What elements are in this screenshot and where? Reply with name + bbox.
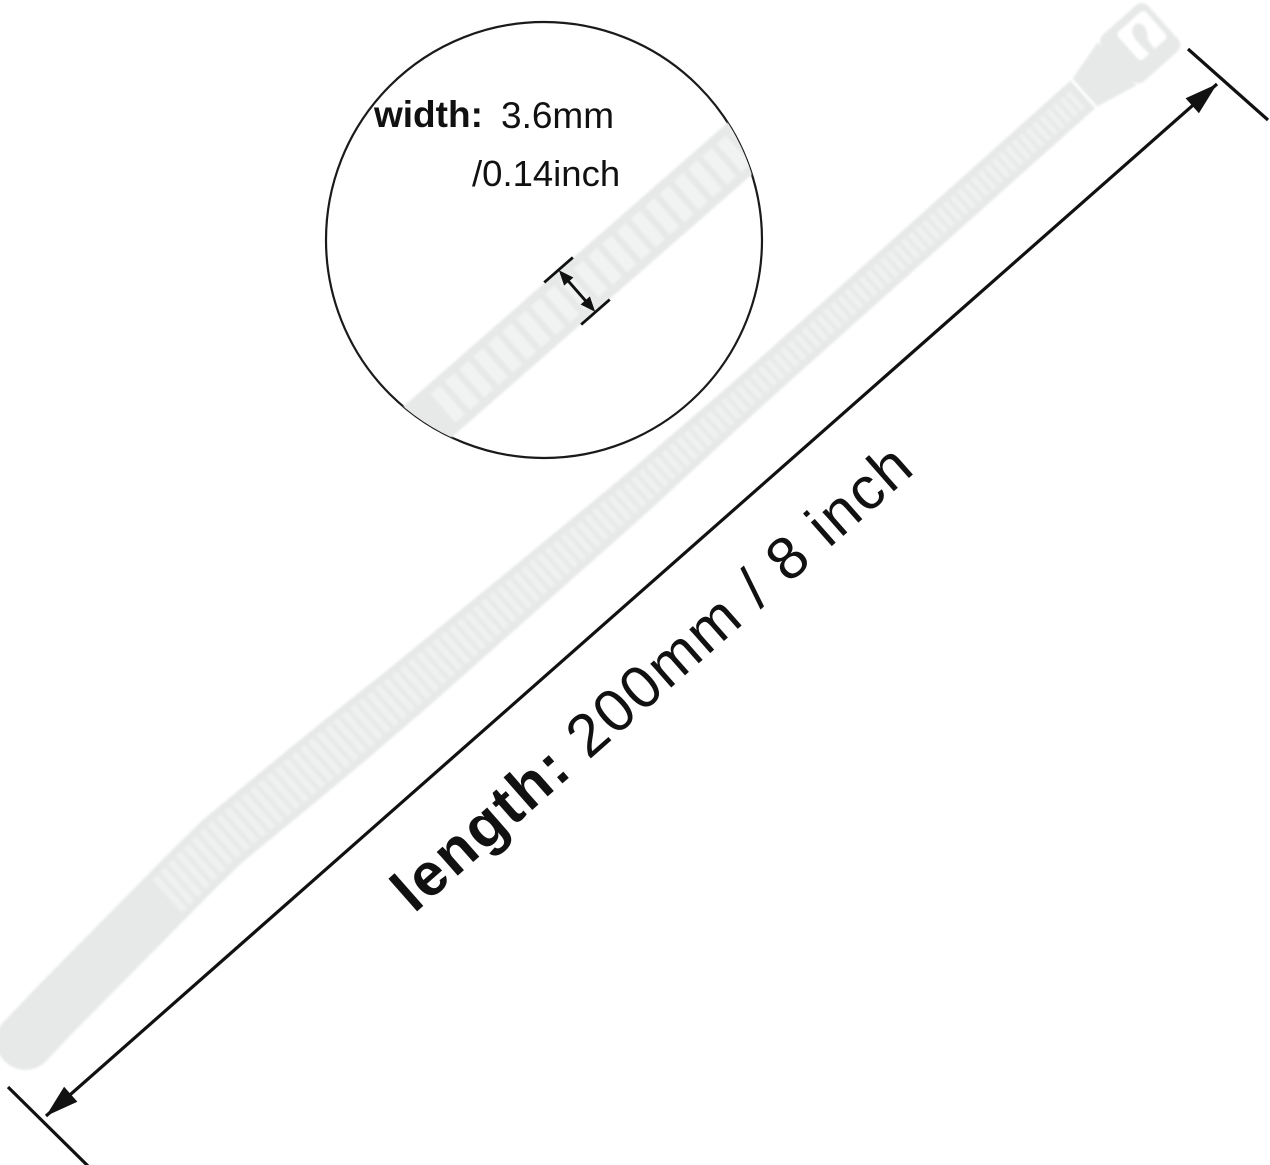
svg-text:3.6mm: 3.6mm xyxy=(501,95,614,136)
svg-text:width:: width: xyxy=(373,94,483,135)
svg-text:/0.14inch: /0.14inch xyxy=(472,153,620,194)
